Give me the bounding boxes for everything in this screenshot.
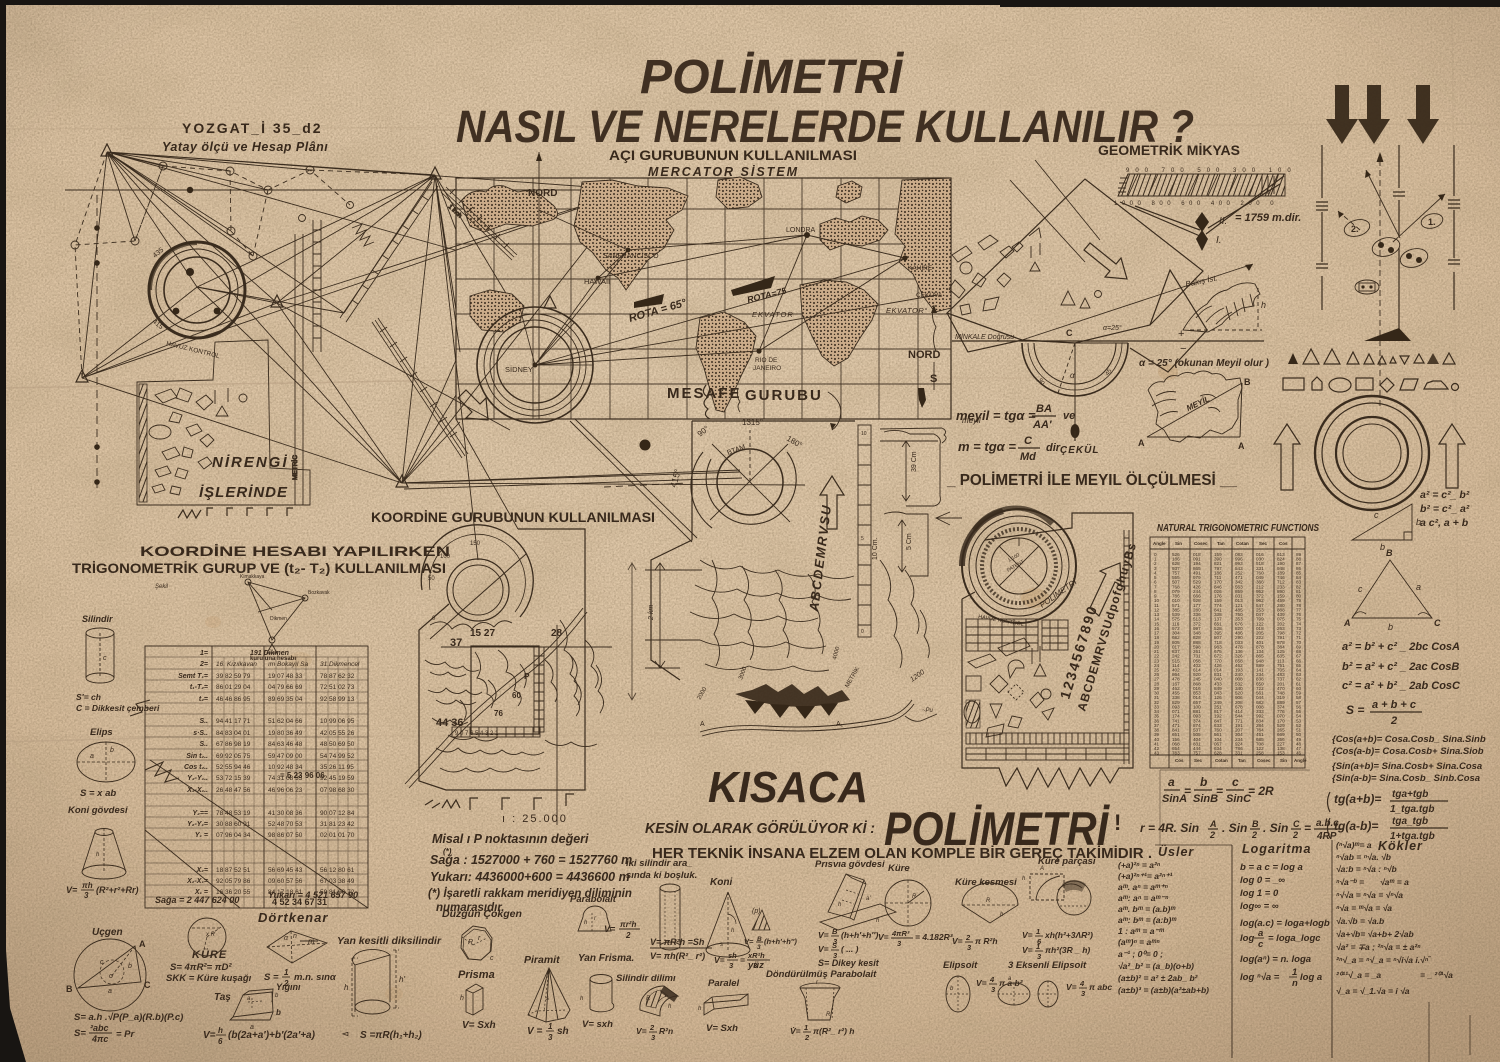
- svg-text:1000 800 600 400 200: 1000 800 600 400 200 0: [1114, 201, 1278, 207]
- svg-text:HAWAİİ: HAWAİİ: [584, 277, 610, 286]
- svg-text:Elipsoit: Elipsoit: [943, 960, 978, 971]
- svg-text:19 80 36 49: 19 80 36 49: [268, 730, 303, 737]
- svg-text:sh: sh: [557, 1026, 569, 1037]
- svg-text:sında ki boşluk.: sında ki boşluk.: [626, 870, 697, 881]
- svg-text:KOORDİNE HESABI YAPILIRKEN: KOORDİNE HESABI YAPILIRKEN: [140, 543, 450, 559]
- svg-text:b² = c²_ a²: b² = c²_ a²: [1420, 503, 1470, 515]
- svg-text:c: c: [1258, 939, 1264, 950]
- svg-text:a: a: [1258, 928, 1263, 939]
- svg-text:67 86 98 19: 67 86 98 19: [216, 741, 251, 748]
- svg-text:a + b + c: a + b + c: [1372, 699, 1416, 711]
- svg-text:b: b: [128, 963, 132, 970]
- svg-text:KISACA: KISACA: [708, 763, 868, 812]
- svg-text:18 87 52 51: 18 87 52 51: [216, 867, 251, 874]
- svg-text:a: a: [108, 988, 112, 995]
- svg-text:c² = a² + b² _ 2ab CosC: c² = a² + b² _ 2ab CosC: [1342, 680, 1461, 692]
- svg-text:Sin t₂..: Sin t₂..: [186, 753, 208, 760]
- svg-text:2=: 2=: [199, 661, 208, 668]
- svg-text:h: h: [344, 983, 349, 992]
- svg-text:yüz: yüz: [747, 960, 764, 971]
- svg-text:=: =: [1184, 784, 1191, 798]
- svg-text:1: 1: [1036, 927, 1040, 936]
- svg-text:10 Cm.: 10 Cm.: [872, 537, 879, 560]
- svg-text:◅: ◅: [341, 1029, 349, 1038]
- svg-text:V= Sxh: V= Sxh: [462, 1020, 496, 1031]
- svg-text:B: B: [66, 984, 73, 994]
- svg-text:t₂=: t₂=: [199, 696, 208, 703]
- svg-text:02 01 01 70: 02 01 01 70: [320, 832, 355, 839]
- svg-text:56 69 45 43: 56 69 45 43: [268, 867, 303, 874]
- svg-text:C: C: [1024, 435, 1033, 447]
- svg-text:B: B: [1244, 377, 1251, 387]
- svg-text:Şekil: Şekil: [155, 584, 169, 590]
- svg-text:= Pr: = Pr: [116, 1029, 136, 1040]
- svg-text:V= sxh: V= sxh: [582, 1019, 613, 1030]
- svg-text:KÜRE: KÜRE: [192, 948, 227, 961]
- svg-text:. Sin: . Sin: [1222, 821, 1247, 835]
- svg-text:t₁-T₂=: t₁-T₂=: [190, 684, 208, 691]
- svg-text:Semt T₁=: Semt T₁=: [178, 673, 208, 680]
- svg-text:Piramit: Piramit: [524, 954, 560, 966]
- svg-text:I.: I.: [1216, 235, 1222, 246]
- svg-text:3: 3: [548, 1033, 553, 1042]
- svg-text:AÇI GURUBUNUN KULLANILMASI: AÇI GURUBUNUN KULLANILMASI: [609, 147, 857, 163]
- svg-text:π R²h: π R²h: [975, 936, 998, 946]
- svg-text:2: 2: [804, 1033, 810, 1042]
- svg-text:31 81 23 42: 31 81 23 42: [320, 821, 355, 828]
- svg-text:. Sin: . Sin: [1263, 821, 1288, 835]
- svg-text:1=: 1=: [200, 650, 208, 657]
- svg-text:Dörtkenar: Dörtkenar: [258, 910, 328, 925]
- svg-text:π abc: π abc: [1089, 982, 1112, 992]
- svg-text:Sağa = 2 447 624 00: Sağa = 2 447 624 00: [155, 895, 239, 905]
- svg-text:{Cos(a-b)= Cosa.Cosb+ Sina.Sio: {Cos(a-b)= Cosa.Cosb+ Sina.Siob: [1332, 746, 1484, 757]
- svg-text:a: a: [90, 753, 94, 760]
- svg-text:aᵐ: aⁿ = aᵐ⁻ⁿ: aᵐ: aⁿ = aᵐ⁻ⁿ: [1118, 893, 1169, 903]
- svg-text:Taş: Taş: [214, 992, 231, 1003]
- svg-text:S= 4πR²= πD²: S= 4πR²= πD²: [170, 962, 232, 973]
- svg-text:S =πR(h₁+h₂): S =πR(h₁+h₂): [360, 1030, 422, 1041]
- svg-text:(a±b)² = a² ± 2ab_ b²: (a±b)² = a² ± 2ab_ b²: [1118, 973, 1199, 983]
- svg-text:log(aⁿ) = n. loga: log(aⁿ) = n. loga: [1240, 954, 1311, 965]
- svg-text:5: 5: [861, 536, 864, 542]
- svg-text:1: 1: [1036, 942, 1040, 951]
- svg-text:V=: V=: [744, 937, 754, 946]
- svg-text:C: C: [1066, 328, 1073, 338]
- svg-text:52 48 70 53: 52 48 70 53: [268, 821, 303, 828]
- svg-text:V =: V =: [527, 1026, 542, 1037]
- svg-text:Prısvıa gövdesi: Prısvıa gövdesi: [815, 859, 885, 870]
- svg-text:Döndürülmüş Parabolait: Döndürülmüş Parabolait: [766, 969, 877, 980]
- svg-text:50: 50: [428, 576, 435, 582]
- svg-text:54 74 99 52: 54 74 99 52: [320, 753, 355, 760]
- svg-text:92 58 99 13: 92 58 99 13: [320, 696, 355, 703]
- svg-text:2: 2: [1209, 830, 1215, 840]
- svg-text:{Sin(a-b)= Sina.Cosb_ Sinb.Cos: {Sin(a-b)= Sina.Cosb_ Sinb.Cosa: [1332, 773, 1480, 784]
- svg-text:A₁: A₁: [836, 721, 844, 728]
- svg-text:2 km: 2 km: [648, 605, 655, 621]
- svg-text:3: 3: [757, 944, 761, 951]
- svg-text:A: A: [1238, 441, 1245, 451]
- svg-text:Misal ı P noktasının değeri: Misal ı P noktasının değeri: [432, 832, 589, 846]
- svg-text:A: A: [700, 721, 705, 728]
- svg-text:2: 2: [649, 1023, 655, 1032]
- svg-text:C: C: [144, 980, 151, 990]
- svg-text:86 01 29 04: 86 01 29 04: [216, 684, 251, 691]
- svg-text:Y₂-Y₁..: Y₂-Y₁..: [187, 775, 208, 782]
- svg-text:R: R: [468, 939, 473, 946]
- svg-text:15 27: 15 27: [470, 628, 495, 639]
- svg-text:log(a.c) = loga+logb: log(a.c) = loga+logb: [1240, 918, 1330, 929]
- svg-text:1.: 1.: [1428, 217, 1436, 227]
- svg-text:KESİN OLARAK GÖRÜLÜYOR Kİ :: KESİN OLARAK GÖRÜLÜYOR Kİ :: [645, 820, 875, 837]
- svg-text:S..: S..: [199, 718, 208, 725]
- svg-text:78 87 62 32: 78 87 62 32: [320, 673, 355, 680]
- svg-text:V=: V=: [1022, 945, 1033, 955]
- svg-text:a: a: [1416, 582, 1421, 592]
- svg-text:900 700 500 300 100: 900 700 500 300 100: [1126, 168, 1297, 174]
- svg-text:150: 150: [470, 541, 481, 547]
- svg-text:39 82 59 79: 39 82 59 79: [216, 673, 251, 680]
- svg-text:Y₂==: Y₂==: [192, 810, 208, 817]
- svg-text:Koni gövdesi: Koni gövdesi: [68, 805, 128, 816]
- svg-text:MERCATOR SİSTEM: MERCATOR SİSTEM: [648, 164, 799, 179]
- svg-text:√a.√b = √a.b: √a.√b = √a.b: [1336, 916, 1384, 926]
- svg-text:Cosec: Cosec: [1194, 541, 1208, 546]
- svg-text:52 55 94 46: 52 55 94 46: [216, 764, 251, 771]
- svg-text:log 1 = 0: log 1 = 0: [1240, 888, 1279, 899]
- svg-text:Küre kesmesi: Küre kesmesi: [955, 877, 1017, 888]
- svg-text:Dikmen: Dikmen: [270, 616, 287, 622]
- svg-text:s: s: [546, 996, 549, 1002]
- svg-text:²ⁿ√_a = ⁿ√_a = ⁿ√i√a i.√ⁿ‾: ²ⁿ√_a = ⁿ√_a = ⁿ√i√a i.√ⁿ‾: [1336, 955, 1431, 965]
- svg-text:84 63 46 48: 84 63 46 48: [268, 741, 303, 748]
- svg-text:3: 3: [84, 891, 89, 900]
- svg-text:~Pu: ~Pu: [922, 708, 934, 714]
- svg-text:( ... ): ( ... ): [841, 944, 859, 954]
- svg-text:−: −: [1180, 343, 1186, 355]
- svg-text:Cos: Cos: [1175, 758, 1184, 763]
- svg-text:3 Eksenli Elipsoit: 3 Eksenli Elipsoit: [1008, 960, 1087, 971]
- svg-text:C: C: [1293, 819, 1300, 829]
- svg-text:Kökler: Kökler: [1378, 839, 1423, 853]
- svg-text:Angle: Angle: [1294, 758, 1307, 763]
- svg-text:46 46 86 95: 46 46 86 95: [216, 696, 251, 703]
- svg-text:SKK = Küre kuşağı: SKK = Küre kuşağı: [166, 973, 252, 984]
- svg-text:a.b.c: a.b.c: [1316, 818, 1339, 829]
- svg-text:4πc: 4πc: [91, 1034, 108, 1044]
- svg-text:BA: BA: [1036, 403, 1052, 415]
- svg-text:Koni: Koni: [710, 877, 732, 888]
- svg-text:Logaritma: Logaritma: [1242, 842, 1311, 856]
- svg-text:ÇEKÜVA: ÇEKÜVA: [916, 291, 943, 299]
- svg-text:c: c: [1358, 584, 1363, 594]
- svg-text:NASIL VE NERELERDE KULLANILIR: NASIL VE NERELERDE KULLANILIR ?: [456, 101, 1194, 152]
- svg-text:²⁰¹¹√_a = _a: ²⁰¹¹√_a = _a: [1336, 970, 1381, 980]
- svg-text:Yatay ölçü ve Hesap Plânı: Yatay ölçü ve Hesap Plânı: [162, 140, 328, 154]
- svg-text:= loga_logc: = loga_logc: [1268, 933, 1321, 944]
- svg-text:V= πR²h =Sh: V= πR²h =Sh: [650, 937, 705, 947]
- svg-text:(a±b)³ = (a±b)(a²±ab+b): (a±b)³ = (a±b)(a²±ab+b): [1118, 985, 1209, 995]
- svg-text:07 98 68 30: 07 98 68 30: [320, 787, 355, 794]
- svg-text:√a+√b= √a+b+ 2√ab: √a+√b= √a+b+ 2√ab: [1336, 929, 1414, 939]
- svg-text:V=: V=: [818, 930, 829, 940]
- svg-text:6: 6: [218, 1037, 223, 1046]
- svg-text:1315°: 1315°: [742, 418, 763, 427]
- svg-text:log∞ = ∞: log∞ = ∞: [1240, 901, 1279, 912]
- svg-text:R²n: R²n: [659, 1026, 673, 1036]
- svg-text:48 50 69 50: 48 50 69 50: [320, 741, 355, 748]
- svg-text:tga+tgb: tga+tgb: [1392, 789, 1428, 800]
- svg-text:Sec: Sec: [1194, 758, 1203, 763]
- svg-text:dir: dir: [1046, 442, 1061, 454]
- svg-text:Y₂-Y₁=: Y₂-Y₁=: [187, 821, 208, 828]
- svg-text:xh(h²+3ΛR²): xh(h²+3ΛR²): [1044, 930, 1093, 940]
- svg-text:x R: x R: [205, 932, 216, 938]
- svg-text:πh: πh: [82, 881, 93, 890]
- svg-text:meyil = tgα =: meyil = tgα =: [956, 408, 1036, 423]
- svg-text:YOZGAT_İ 35_d2: YOZGAT_İ 35_d2: [182, 120, 323, 136]
- svg-text:= 2R: = 2R: [1248, 784, 1274, 798]
- svg-text:Sağa : 1527000 + 760 = 1527760: Sağa : 1527000 + 760 = 1527760 m: [430, 853, 632, 867]
- svg-text:SinB: SinB: [1193, 793, 1218, 805]
- svg-text:A: A: [1209, 819, 1217, 829]
- svg-text:(p): (p): [752, 908, 761, 915]
- svg-text:258: 258: [1256, 751, 1264, 756]
- svg-text:35 26 11 95: 35 26 11 95: [320, 764, 354, 771]
- svg-text:R: R: [826, 1012, 831, 1018]
- svg-text:Kimakkaya: Kimakkaya: [240, 574, 265, 580]
- svg-text:log 0 = _∞: log 0 = _∞: [1240, 875, 1285, 886]
- svg-text:Cotan: Cotan: [1236, 541, 1249, 546]
- svg-text:√a² = ∓a ; ²ⁿ√a = ± a²ⁿ: √a² = ∓a ; ²ⁿ√a = ± a²ⁿ: [1336, 942, 1421, 952]
- svg-text:ⁿ√ab = ⁿ√a. √b: ⁿ√ab = ⁿ√a. √b: [1336, 852, 1391, 862]
- svg-text:84 83 04 01: 84 83 04 01: [216, 730, 251, 737]
- svg-text:V=: V=: [636, 1026, 647, 1036]
- svg-text:Bozkavak: Bozkavak: [308, 590, 330, 596]
- svg-text:Sin: Sin: [1175, 541, 1182, 546]
- svg-text:xR²h: xR²h: [747, 951, 765, 960]
- svg-text:19 07 48 33: 19 07 48 33: [268, 673, 303, 680]
- svg-text:Y₁ =: Y₁ =: [195, 832, 208, 839]
- svg-text:43: 43: [1154, 751, 1160, 756]
- svg-text:2: 2: [1390, 715, 1397, 727]
- svg-text:V=: V=: [1066, 982, 1077, 992]
- svg-text:b: b: [1388, 622, 1393, 632]
- svg-text:Tan: Tan: [1217, 541, 1225, 546]
- svg-text:ve: ve: [1063, 410, 1075, 422]
- svg-text:10: 10: [861, 431, 867, 437]
- svg-text:S=: S=: [74, 1028, 86, 1039]
- svg-text:2: 2: [625, 931, 631, 940]
- svg-text:numarasıdır.: numarasıdır.: [436, 902, 504, 914]
- svg-text:AA′: AA′: [1032, 419, 1053, 431]
- svg-text:√_a = √_1.√a = i √a: √_a = √_1.√a = i √a: [1336, 986, 1410, 996]
- svg-text:V=: V=: [604, 924, 616, 934]
- svg-text:1 : aᵐ = a⁻ᵐ: 1 : aᵐ = a⁻ᵐ: [1118, 926, 1165, 936]
- svg-text:R: R: [646, 996, 651, 1002]
- svg-text:Yığını: Yığını: [276, 982, 301, 992]
- svg-text:= 5 23 96 06: = 5 23 96 06: [280, 771, 325, 780]
- svg-text:1: 1: [804, 1023, 808, 1032]
- svg-text:V=: V=: [66, 885, 78, 895]
- svg-text:!: !: [1114, 810, 1121, 835]
- svg-text:51 62 04 66: 51 62 04 66: [268, 718, 303, 725]
- svg-text:78 48 53 19: 78 48 53 19: [216, 810, 251, 817]
- svg-text:53 72 15 39: 53 72 15 39: [216, 775, 251, 782]
- svg-text:NİRENGİ: NİRENGİ: [212, 454, 289, 471]
- svg-text:26 48 47 56: 26 48 47 56: [216, 787, 251, 794]
- svg-text:Parabolait: Parabolait: [570, 894, 617, 905]
- svg-text:S= a.h .√P(P_a)(R.b)(P.c): S= a.h .√P(P_a)(R.b)(P.c): [74, 1012, 183, 1023]
- svg-text:46: 46: [1296, 751, 1302, 756]
- svg-text:A: A: [139, 939, 146, 949]
- svg-text:Sin: Sin: [1280, 758, 1287, 763]
- svg-text:Tan: Tan: [1238, 758, 1246, 763]
- svg-text:Cos: Cos: [1279, 541, 1288, 546]
- svg-text:{Cos(a+b)= Cosa.Cosb_ Sina.Sin: {Cos(a+b)= Cosa.Cosb_ Sina.Sinb: [1332, 734, 1486, 745]
- svg-text:Prisma: Prisma: [458, 969, 495, 981]
- svg-text:A: A: [1039, 866, 1044, 872]
- svg-text:90 07 12 84: 90 07 12 84: [320, 810, 355, 817]
- svg-text:B: B: [1252, 819, 1259, 829]
- svg-text:GURUBU: GURUBU: [745, 387, 823, 404]
- svg-text:94 41 17 71: 94 41 17 71: [216, 718, 251, 725]
- svg-text:V̇=: V̇=: [790, 1026, 801, 1036]
- svg-text:331: 331: [1235, 751, 1243, 756]
- svg-text:16. Kızılkavan: 16. Kızılkavan: [216, 661, 257, 668]
- svg-text:h: h: [218, 1026, 223, 1035]
- svg-text:tga_tgb: tga_tgb: [1392, 816, 1428, 827]
- svg-text:aᵐ: bᵐ = (a:b)ᵐ: aᵐ: bᵐ = (a:b)ᵐ: [1118, 915, 1177, 925]
- svg-text:Paralel: Paralel: [708, 978, 740, 989]
- svg-text:tg(a-b)=: tg(a-b)=: [1334, 819, 1378, 833]
- svg-text:a² = b² + c² _ 2bc CosA: a² = b² + c² _ 2bc CosA: [1342, 641, 1460, 653]
- svg-text:S = x ab: S = x ab: [80, 788, 116, 799]
- svg-text:191 Dikmen: 191 Dikmen: [250, 650, 289, 657]
- svg-text:V=: V=: [1022, 930, 1033, 940]
- svg-text:59 47 09 00: 59 47 09 00: [268, 753, 303, 760]
- svg-text:09 60 57 56: 09 60 57 56: [268, 878, 303, 885]
- svg-text:πh²(3R _ h): πh²(3R _ h): [1045, 945, 1090, 955]
- svg-text:a⁻¹ ; 0⁰= 0 ;: a⁻¹ ; 0⁰= 0 ;: [1118, 949, 1163, 959]
- svg-text:783: 783: [1172, 751, 1180, 756]
- svg-text:c: c: [100, 959, 104, 966]
- svg-text:72 51 02 73: 72 51 02 73: [320, 684, 355, 691]
- svg-text:1_tga.tgb: 1_tga.tgb: [1390, 804, 1434, 815]
- svg-text:aᵐ. aⁿ = aᵐ⁺ⁿ: aᵐ. aⁿ = aᵐ⁺ⁿ: [1118, 882, 1169, 892]
- svg-text:76: 76: [494, 709, 503, 718]
- svg-text:628: 628: [1214, 751, 1222, 756]
- svg-text:=: =: [1304, 821, 1311, 835]
- svg-text:log: log: [1240, 933, 1254, 944]
- svg-text:V=: V=: [714, 955, 725, 965]
- svg-text:4RP: 4RP: [1316, 831, 1337, 842]
- svg-text:V=: V=: [976, 978, 987, 988]
- svg-text:b: b: [276, 1008, 281, 1017]
- svg-text:2: 2: [1292, 830, 1298, 840]
- svg-text:α=25°: α=25°: [1103, 324, 1122, 332]
- svg-text:10 99 06 95: 10 99 06 95: [320, 718, 355, 725]
- svg-text:= _ ²⁰¹√a: = _ ²⁰¹√a: [1420, 970, 1453, 980]
- svg-text:c: c: [1374, 510, 1379, 520]
- svg-text:0: 0: [861, 629, 864, 635]
- svg-text:iki silindir ara_: iki silindir ara_: [626, 858, 693, 869]
- svg-text:m: m: [308, 937, 315, 946]
- svg-text:KOORDİNE GURUBUNUN KULLANILM: KOORDİNE GURUBUNUN KULLANILMASI: [371, 509, 655, 525]
- svg-text:n: n: [1292, 978, 1298, 989]
- svg-text:ÇEKÜL: ÇEKÜL: [1060, 443, 1099, 456]
- svg-text:m = tgα =: m = tgα =: [958, 439, 1016, 454]
- svg-text:α: α: [1070, 371, 1075, 380]
- svg-text:R: R: [912, 894, 917, 900]
- svg-text:56 12 80 61: 56 12 80 61: [320, 867, 355, 874]
- svg-text:69 92 05 75: 69 92 05 75: [216, 753, 251, 760]
- svg-text:41 30 08 36: 41 30 08 36: [268, 810, 303, 817]
- svg-text:RIO DE: RIO DE: [755, 357, 778, 364]
- svg-text:98 86 07 50: 98 86 07 50: [268, 832, 303, 839]
- svg-text:Yan Frisma.: Yan Frisma.: [578, 953, 634, 964]
- svg-text:42 05 55 26: 42 05 55 26: [320, 730, 355, 737]
- svg-text:(R²+r²+Rr): (R²+r²+Rr): [96, 885, 139, 895]
- svg-text:EKVATOR: EKVATOR: [752, 310, 794, 319]
- svg-text:V=: V=: [203, 1030, 216, 1041]
- svg-text:_ POLİMETRİ İLE MEYIL ÖLÇÜL: _ POLİMETRİ İLE MEYIL ÖLÇÜLMESİ __: [946, 470, 1238, 489]
- svg-text:{Sin(a+b)= Sina.Cosb+ Sina.Cos: {Sin(a+b)= Sina.Cosb+ Sina.Cosa: [1332, 761, 1482, 772]
- svg-text:89 69 35 04: 89 69 35 04: [268, 696, 303, 703]
- svg-text:153: 153: [1277, 751, 1285, 756]
- svg-text:POLİMETRİ: POLİMETRİ: [640, 51, 905, 104]
- svg-text:h: h: [1261, 300, 1266, 310]
- svg-text:C: C: [1434, 618, 1441, 628]
- svg-text:07 96 04 34: 07 96 04 34: [216, 832, 251, 839]
- svg-text:=: =: [740, 955, 745, 965]
- svg-text:²abc: ²abc: [90, 1023, 109, 1033]
- svg-text:a² = c²_ b²: a² = c²_ b²: [1420, 489, 1470, 501]
- svg-text:π(R²_ r²) h: π(R²_ r²) h: [813, 1026, 854, 1036]
- svg-text:r = 4R. Sin: r = 4R. Sin: [1140, 821, 1199, 835]
- svg-text:GEOMETRİK MİKYAS: GEOMETRİK MİKYAS: [1098, 142, 1240, 158]
- svg-text:sh: sh: [728, 951, 737, 960]
- svg-text:b: b: [1380, 542, 1385, 552]
- svg-text:c: c: [103, 655, 107, 662]
- svg-text:Cotan: Cotan: [1215, 758, 1228, 763]
- svg-text:V=: V=: [878, 932, 889, 942]
- svg-text:2: 2: [1251, 830, 1257, 840]
- svg-text:A: A: [1138, 438, 1145, 448]
- svg-text:(h+h′+h″): (h+h′+h″): [764, 937, 797, 946]
- svg-text:MİNKALE Doğrusu: MİNKALE Doğrusu: [955, 333, 1014, 341]
- svg-text:2: 2: [965, 933, 971, 942]
- svg-text:1: 1: [548, 1022, 553, 1031]
- svg-text:√a²_b² = (a_b)(o+b): √a²_b² = (a_b)(o+b): [1118, 961, 1194, 971]
- svg-text:(h+h′+h″): (h+h′+h″): [841, 930, 878, 940]
- svg-text:= 4.182R³: = 4.182R³: [915, 932, 954, 942]
- svg-text:Uçgen: Uçgen: [92, 927, 123, 938]
- svg-text:c: c: [1232, 775, 1239, 789]
- svg-text:Küre: Küre: [888, 863, 910, 874]
- svg-text:SANFRANCİSCO: SANFRANCİSCO: [603, 251, 659, 260]
- svg-text:31.Dikmencel: 31.Dikmencel: [320, 661, 360, 668]
- svg-text:Elips: Elips: [90, 727, 113, 738]
- svg-text:METRİC: METRİC: [290, 455, 299, 480]
- svg-text:V=: V=: [952, 936, 963, 946]
- svg-text:(ⁿ√a)ᵐ= a: (ⁿ√a)ᵐ= a: [1336, 840, 1372, 850]
- svg-text:SİDNEY: SİDNEY: [505, 365, 533, 374]
- svg-text:Sec: Sec: [1259, 541, 1268, 546]
- svg-text:(+a)²ⁿ = a²ⁿ: (+a)²ⁿ = a²ⁿ: [1118, 860, 1161, 870]
- svg-text:Silindir dilimı: Silindir dilimı: [616, 973, 676, 984]
